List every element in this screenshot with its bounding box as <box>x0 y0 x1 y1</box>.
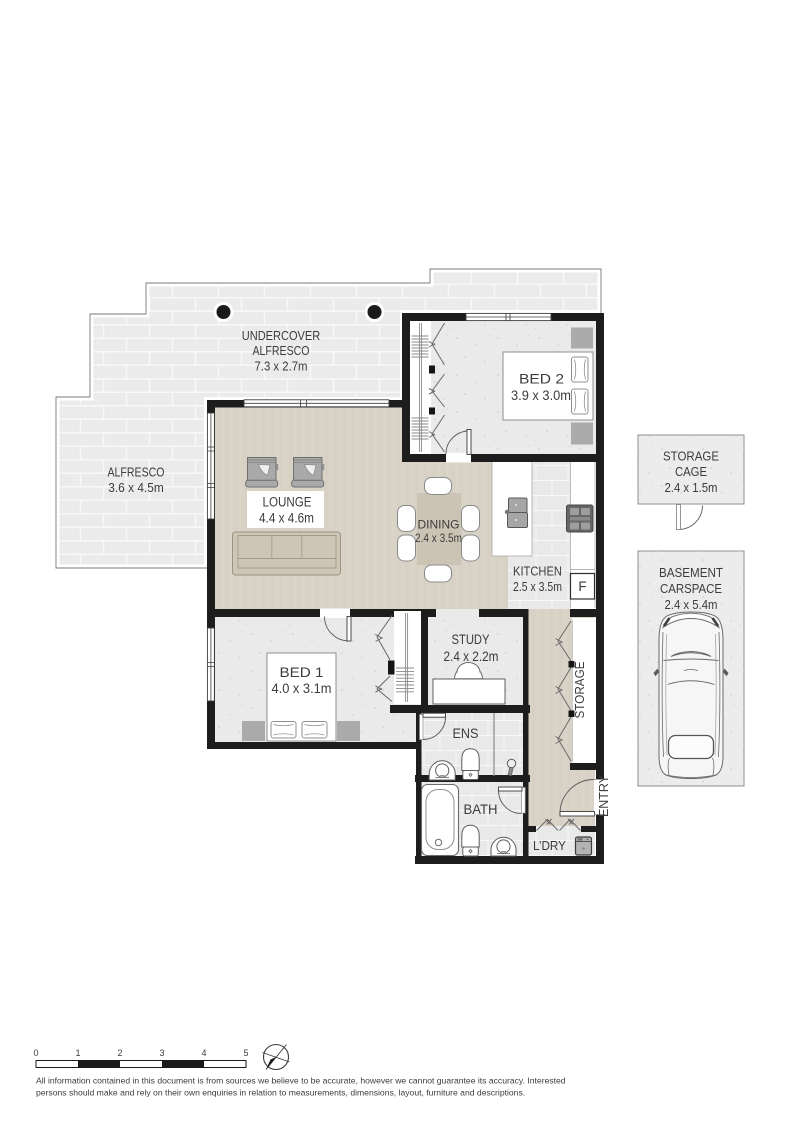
svg-text:STORAGE: STORAGE <box>572 661 587 718</box>
svg-text:3.9 x 3.0m: 3.9 x 3.0m <box>511 388 571 403</box>
svg-text:BATH: BATH <box>464 802 498 817</box>
svg-text:BED 1: BED 1 <box>280 665 324 680</box>
svg-text:persons should make and rely o: persons should make and rely on their ow… <box>36 1087 525 1097</box>
svg-text:BASEMENT: BASEMENT <box>659 565 723 580</box>
svg-text:CARSPACE: CARSPACE <box>660 581 722 596</box>
svg-text:ENS: ENS <box>453 726 479 741</box>
svg-text:ENTRY: ENTRY <box>596 775 611 817</box>
svg-text:All information contained in t: All information contained in this docume… <box>36 1075 566 1085</box>
svg-text:3: 3 <box>159 1048 164 1058</box>
svg-text:2.4 x 1.5m: 2.4 x 1.5m <box>665 480 718 495</box>
svg-text:DINING: DINING <box>418 518 460 532</box>
svg-text:F: F <box>578 579 586 594</box>
svg-text:BED 2: BED 2 <box>519 372 564 387</box>
svg-text:5: 5 <box>243 1048 248 1058</box>
svg-text:0: 0 <box>33 1048 38 1058</box>
svg-text:4.0 x 3.1m: 4.0 x 3.1m <box>272 681 332 696</box>
svg-text:3.6 x 4.5m: 3.6 x 4.5m <box>108 480 164 495</box>
svg-text:UNDERCOVER: UNDERCOVER <box>242 328 321 343</box>
svg-text:STORAGE: STORAGE <box>663 449 719 464</box>
svg-text:2.4 x 2.2m: 2.4 x 2.2m <box>444 649 499 664</box>
svg-text:4.4 x 4.6m: 4.4 x 4.6m <box>259 511 314 526</box>
svg-text:L’DRY: L’DRY <box>533 838 566 853</box>
svg-text:2.5 x 3.5m: 2.5 x 3.5m <box>513 579 562 594</box>
svg-text:2: 2 <box>117 1048 122 1058</box>
svg-text:LOUNGE: LOUNGE <box>263 495 312 510</box>
svg-text:1: 1 <box>75 1048 80 1058</box>
svg-text:2.4 x 3.5m: 2.4 x 3.5m <box>415 531 462 545</box>
svg-text:CAGE: CAGE <box>675 464 707 479</box>
svg-text:ALFRESCO: ALFRESCO <box>108 464 165 479</box>
svg-text:2.4 x 5.4m: 2.4 x 5.4m <box>665 597 718 612</box>
svg-text:ALFRESCO: ALFRESCO <box>253 343 310 358</box>
svg-text:STUDY: STUDY <box>452 632 490 647</box>
svg-text:4: 4 <box>201 1048 206 1058</box>
svg-text:KITCHEN: KITCHEN <box>513 564 562 579</box>
svg-text:7.3 x 2.7m: 7.3 x 2.7m <box>255 359 308 374</box>
